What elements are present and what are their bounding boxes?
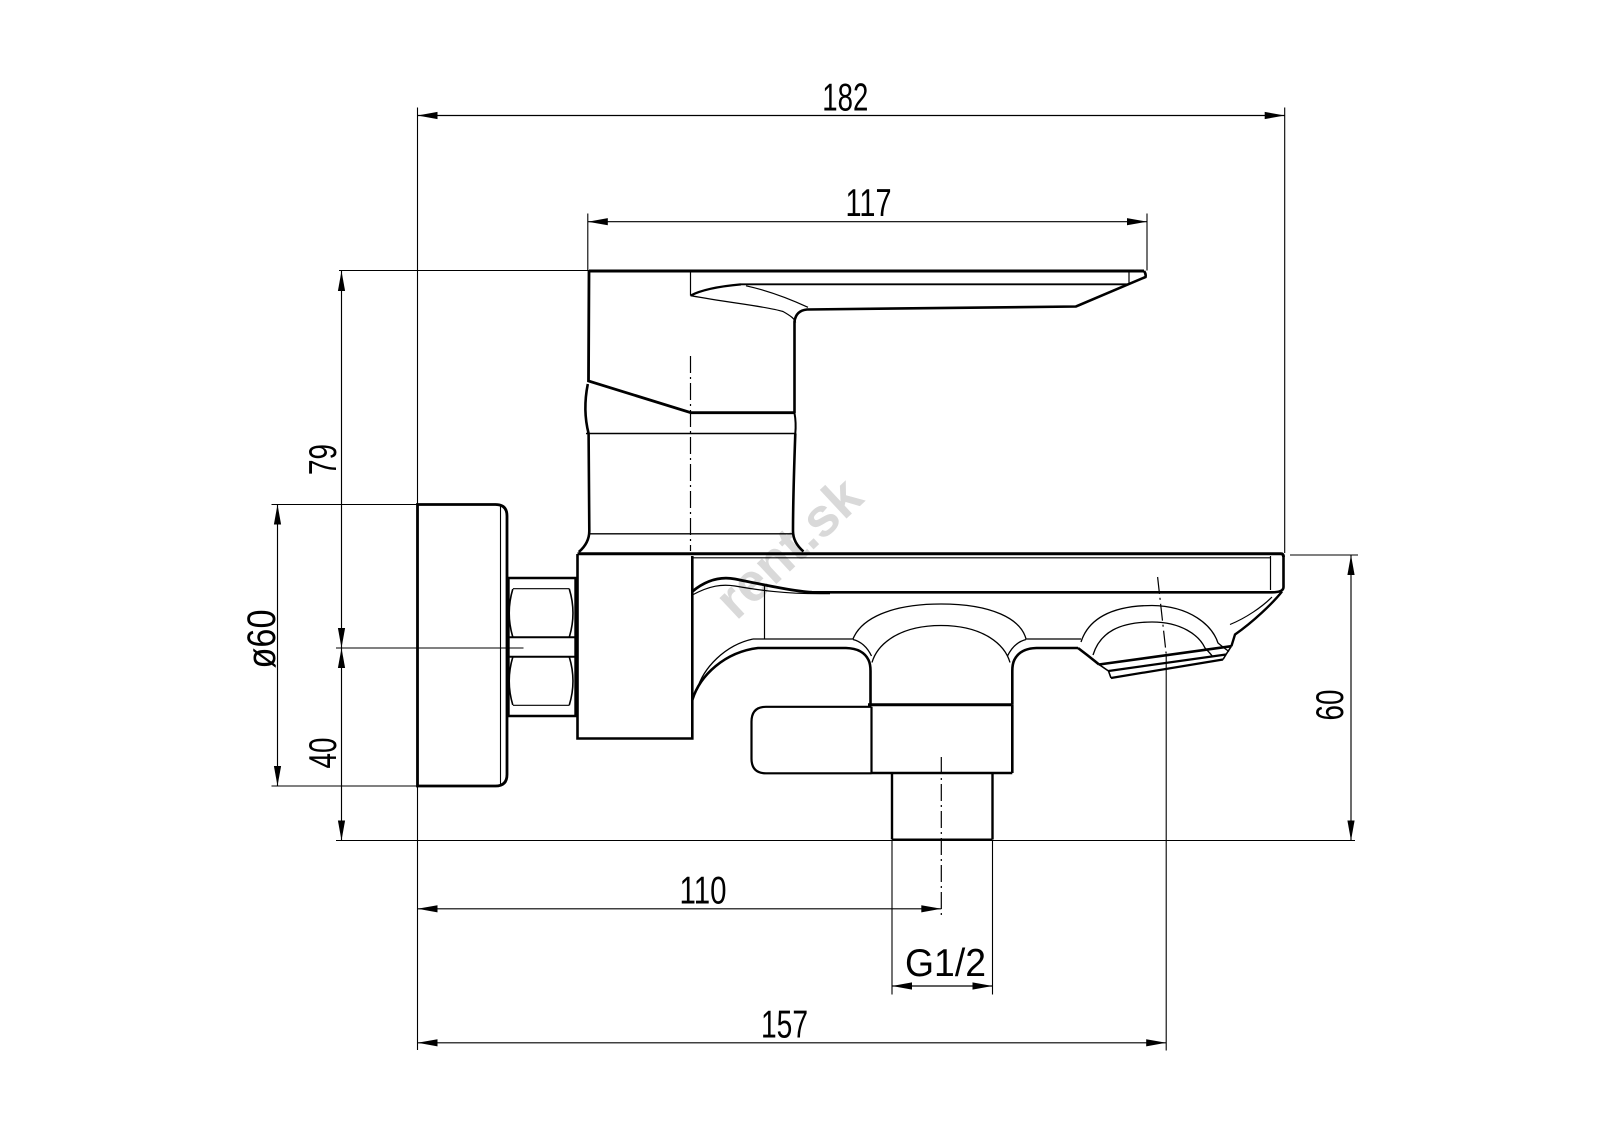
svg-text:110: 110 bbox=[680, 870, 727, 913]
svg-text:79: 79 bbox=[302, 444, 345, 475]
svg-text:182: 182 bbox=[822, 76, 868, 119]
svg-text:G1/2: G1/2 bbox=[905, 942, 986, 985]
svg-text:40: 40 bbox=[302, 738, 345, 769]
svg-text:ø60: ø60 bbox=[240, 610, 284, 669]
svg-text:117: 117 bbox=[846, 182, 892, 225]
svg-text:60: 60 bbox=[1309, 690, 1352, 721]
svg-text:157: 157 bbox=[761, 1004, 808, 1047]
